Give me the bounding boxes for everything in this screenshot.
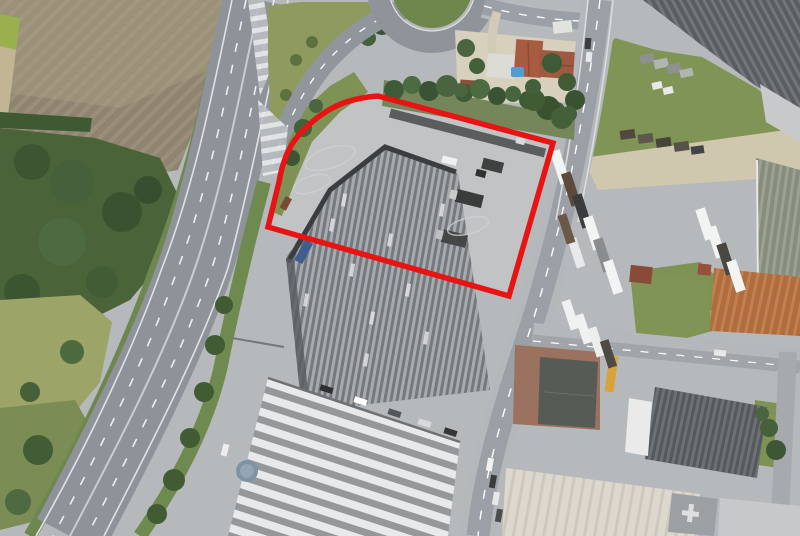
tree-blob	[102, 192, 142, 232]
tree-blob	[561, 106, 577, 122]
tree-blob	[50, 160, 94, 204]
tree-blob	[419, 81, 439, 101]
tree-blob	[755, 407, 769, 421]
tree-blob	[558, 73, 576, 91]
tree-blob	[403, 76, 421, 94]
white-shed	[552, 20, 572, 34]
hedge-blob	[147, 504, 167, 524]
silo-top	[240, 464, 254, 478]
tree-blob	[309, 99, 323, 113]
hedge-blob	[290, 54, 302, 66]
tree-blob	[20, 382, 40, 402]
swimming-pool	[511, 67, 524, 77]
tree-blob	[38, 218, 86, 266]
tree-blob	[454, 83, 468, 97]
satellite-scene	[0, 0, 800, 536]
hedge-blob	[306, 36, 318, 48]
red-roof-shed	[629, 265, 653, 284]
tree-blob	[505, 86, 521, 102]
hedge-blob	[180, 428, 200, 448]
car-street	[584, 38, 591, 49]
tree-blob	[760, 419, 778, 437]
tree-blob	[766, 440, 786, 460]
satellite-image	[0, 0, 800, 536]
tree-blob	[86, 266, 118, 298]
hedge-blob	[194, 382, 214, 402]
hedge-blob	[163, 469, 185, 491]
hedge-blob	[215, 296, 233, 314]
tree-blob	[542, 53, 562, 73]
tree-blob	[470, 79, 490, 99]
car-street	[586, 52, 593, 62]
house-ridge-line	[528, 42, 529, 76]
hedge-blob	[205, 335, 225, 355]
warehouse-southeast-annex	[625, 398, 652, 456]
red-roof-shed	[697, 263, 711, 275]
tree-blob	[23, 435, 53, 465]
tree-blob	[14, 144, 50, 180]
tree-blob	[5, 489, 31, 515]
tree-blob	[134, 176, 162, 204]
tree-blob	[469, 58, 485, 74]
house-white-roof	[486, 53, 515, 79]
car-east-road	[714, 349, 727, 356]
tree-blob	[436, 75, 458, 97]
tree-blob	[488, 87, 506, 105]
building-orange	[710, 268, 800, 336]
tree-blob	[60, 340, 84, 364]
tree-blob	[525, 79, 541, 95]
tree-blob	[457, 39, 475, 57]
